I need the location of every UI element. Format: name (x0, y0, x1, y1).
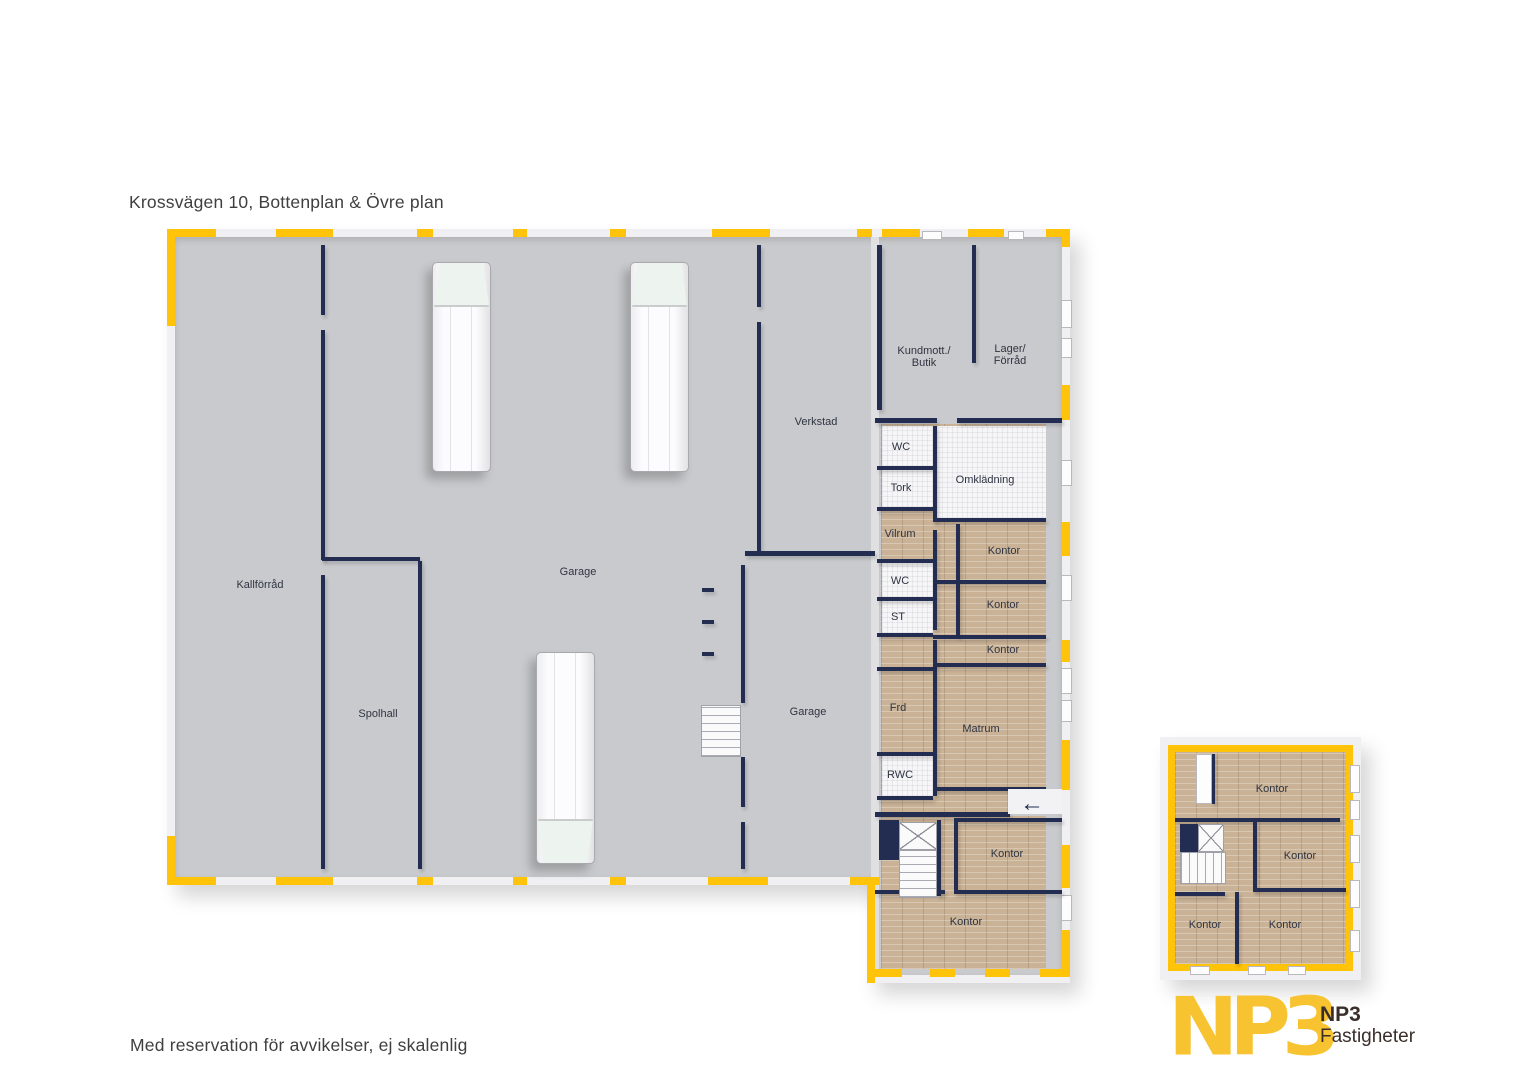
window-marker (1350, 765, 1360, 793)
wall-segment (958, 818, 1062, 822)
window-marker (1061, 668, 1072, 694)
window-marker (1061, 895, 1072, 921)
wall-segment (745, 551, 875, 556)
room-label-kundmott-line2: Butik (897, 357, 950, 369)
room-label-lager-line2: Förråd (994, 355, 1026, 367)
room-label-kundmott: Kundmott./ Butik (897, 345, 950, 369)
room-label-garage2: Garage (790, 706, 827, 718)
wall-stub (702, 588, 714, 592)
room-label-kontor-c: Kontor (987, 644, 1019, 656)
wall-segment (972, 245, 976, 363)
window-marker (1061, 338, 1072, 358)
exterior-wall-segment (857, 229, 872, 237)
exterior-wall-segment (1062, 740, 1070, 790)
room-label-lager-line1: Lager/ (994, 343, 1026, 355)
window-marker (1190, 966, 1210, 975)
window-marker (1008, 231, 1024, 240)
room-label-omkladning: Omklädning (956, 474, 1015, 486)
garage-staircase (701, 705, 741, 757)
wall-segment (321, 245, 325, 315)
window-marker (1350, 930, 1360, 952)
window-marker (1350, 880, 1360, 908)
wall-segment (418, 561, 422, 869)
np3-logo-name: NP3 (1320, 1003, 1361, 1027)
wall-segment (933, 663, 1046, 667)
room-label-vilrum: Vilrum (885, 528, 916, 540)
window-marker (1061, 460, 1072, 486)
room-label-spolhall: Spolhall (358, 708, 397, 720)
exterior-wall-segment (167, 877, 216, 885)
wing-staircase (899, 850, 937, 898)
wall-segment (877, 752, 933, 756)
stair-landing-block (879, 820, 899, 860)
wall-segment (741, 757, 745, 807)
wall-segment (757, 322, 761, 551)
van-cab (632, 263, 687, 307)
exterior-wall-segment (1062, 845, 1070, 888)
van (630, 262, 689, 472)
room-label-kallforrad: Kallförråd (236, 579, 283, 591)
wall-segment (1235, 892, 1239, 964)
stair-cross-box (1198, 824, 1224, 852)
wall-segment (757, 245, 761, 307)
exterior-wall-segment (985, 969, 1010, 977)
wall-segment (877, 245, 882, 410)
wall-segment (956, 524, 960, 582)
wall-segment (956, 584, 960, 637)
room-label-wc2: WC (891, 575, 909, 587)
wall-segment (877, 667, 933, 671)
wall-segment (1212, 754, 1215, 804)
np3-logo-subtitle: Fastigheter (1320, 1026, 1415, 1048)
window-marker (1288, 966, 1306, 975)
exterior-wall-segment (417, 877, 433, 885)
st-floor (882, 601, 933, 633)
wall-segment (957, 418, 1062, 423)
wall-segment (877, 507, 933, 511)
wall-segment (741, 565, 745, 703)
window-marker (1061, 300, 1072, 328)
wall-segment (1175, 818, 1240, 822)
wall-segment (875, 812, 1010, 817)
np3-logo-mark: NP3 (1168, 987, 1331, 1067)
wall-stub (702, 652, 714, 656)
window-marker (1061, 575, 1072, 601)
exterior-wall-segment (610, 877, 626, 885)
wall-segment (877, 796, 933, 800)
van (432, 262, 491, 472)
floorplan-page: Krossvägen 10, Bottenplan & Övre plan Me… (0, 0, 1527, 1080)
room-label-kontor-4: Kontor (1269, 919, 1301, 931)
exterior-wall-segment (850, 877, 880, 885)
exterior-wall-segment (276, 229, 333, 237)
exterior-wall-segment (712, 229, 770, 237)
room-label-tork: Tork (891, 482, 912, 494)
exterior-wall-segment (1168, 745, 1353, 752)
wall-segment (877, 633, 933, 637)
room-label-st: ST (891, 611, 905, 623)
exterior-wall-segment (1062, 522, 1070, 556)
room-label-kontor-d: Kontor (991, 848, 1023, 860)
wall-stub (702, 620, 714, 624)
wall-segment (877, 559, 933, 563)
wall-segment (954, 818, 958, 894)
room-label-kundmott-line1: Kundmott./ (897, 345, 950, 357)
exterior-wall-segment (882, 229, 920, 237)
room-label-kontor-2: Kontor (1284, 850, 1316, 862)
exterior-wall-segment (930, 969, 955, 977)
room-label-verkstad: Verkstad (795, 416, 838, 428)
exterior-wall-segment (1062, 385, 1070, 420)
exterior-wall-segment (1062, 640, 1070, 662)
wall-segment (322, 557, 420, 561)
wall-segment (1253, 888, 1346, 892)
wall-segment (741, 822, 745, 869)
exterior-wall-segment (867, 969, 902, 977)
garage-floor (175, 237, 880, 877)
wall-segment (933, 635, 1046, 639)
van-cab (538, 819, 593, 863)
exterior-wall-segment (867, 877, 875, 983)
stair-cross-box (899, 822, 937, 850)
exterior-wall-segment (610, 229, 626, 237)
entrance-arrow-icon: ← (1020, 792, 1044, 816)
exterior-wall-segment (276, 877, 333, 885)
room-label-wc1: WC (892, 441, 910, 453)
window-marker (1248, 966, 1266, 975)
window-marker (1061, 700, 1072, 722)
omkladning-floor (937, 426, 1046, 518)
room-label-lager: Lager/ Förråd (994, 343, 1026, 367)
exterior-wall-segment (1062, 930, 1070, 975)
wall-segment (877, 466, 933, 470)
room-label-rwc: RWC (887, 769, 913, 781)
room-label-kontor-b: Kontor (987, 599, 1019, 611)
wall-segment (958, 890, 1062, 894)
window-marker (1350, 800, 1360, 820)
exterior-wall-segment (417, 229, 433, 237)
wall-segment (321, 330, 325, 560)
room-label-frd: Frd (890, 702, 907, 714)
window-marker (1350, 835, 1360, 863)
exterior-wall-segment (513, 229, 527, 237)
exterior-wall-segment (513, 877, 527, 885)
room-label-kontor-1: Kontor (1256, 783, 1288, 795)
wall-segment (933, 580, 1046, 584)
ovreplan-staircase (1180, 852, 1226, 884)
wall-segment (875, 418, 937, 423)
wall-segment (933, 518, 1046, 522)
wall-segment (1253, 822, 1257, 890)
wall-segment (1175, 892, 1225, 896)
exterior-wall-segment (167, 229, 175, 326)
room-label-kontor-e: Kontor (950, 916, 982, 928)
room-label-kontor-a: Kontor (988, 545, 1020, 557)
exterior-wall-segment (1062, 229, 1070, 247)
closet-marker (1196, 754, 1212, 804)
wall-segment (933, 426, 937, 522)
van (536, 652, 595, 864)
page-title: Krossvägen 10, Bottenplan & Övre plan (129, 192, 444, 213)
exterior-wall-segment (968, 229, 1004, 237)
exterior-wall-segment (708, 877, 768, 885)
exterior-wall-segment (1168, 745, 1175, 971)
wall-segment (877, 597, 933, 601)
wall-segment (937, 820, 941, 896)
van-cab (434, 263, 489, 307)
wall-segment (321, 575, 325, 869)
disclaimer-text: Med reservation för avvikelser, ej skale… (130, 1035, 468, 1056)
stair-landing-block (1180, 824, 1198, 852)
room-label-kontor-3: Kontor (1189, 919, 1221, 931)
room-label-matrum: Matrum (962, 723, 999, 735)
window-marker (922, 231, 942, 240)
room-label-garage: Garage (560, 566, 597, 578)
